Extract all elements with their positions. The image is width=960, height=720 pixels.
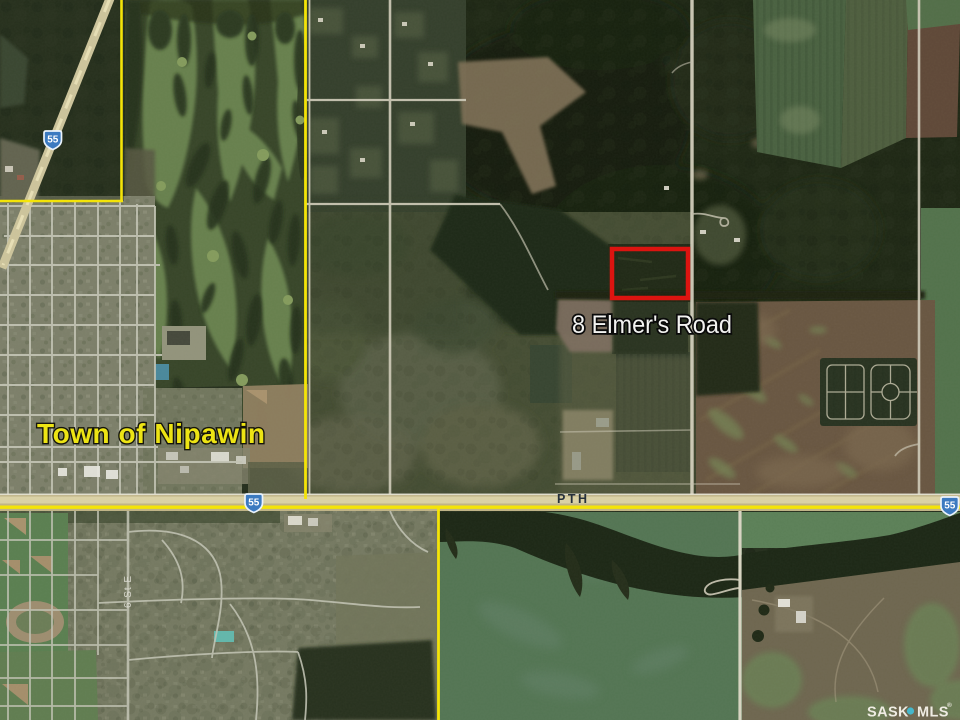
svg-text:55: 55 <box>47 135 59 146</box>
svg-text:PTH: PTH <box>557 492 587 506</box>
svg-text:55: 55 <box>944 501 956 512</box>
svg-text:55: 55 <box>248 498 260 509</box>
svg-text:MLS: MLS <box>917 705 949 720</box>
svg-text:8 Elmer's Road: 8 Elmer's Road <box>572 311 732 339</box>
svg-text:6 St E: 6 St E <box>123 576 134 608</box>
svg-text:Town of Nipawin: Town of Nipawin <box>37 418 265 449</box>
svg-text:®: ® <box>947 701 952 709</box>
svg-text:SASK: SASK <box>867 705 909 720</box>
